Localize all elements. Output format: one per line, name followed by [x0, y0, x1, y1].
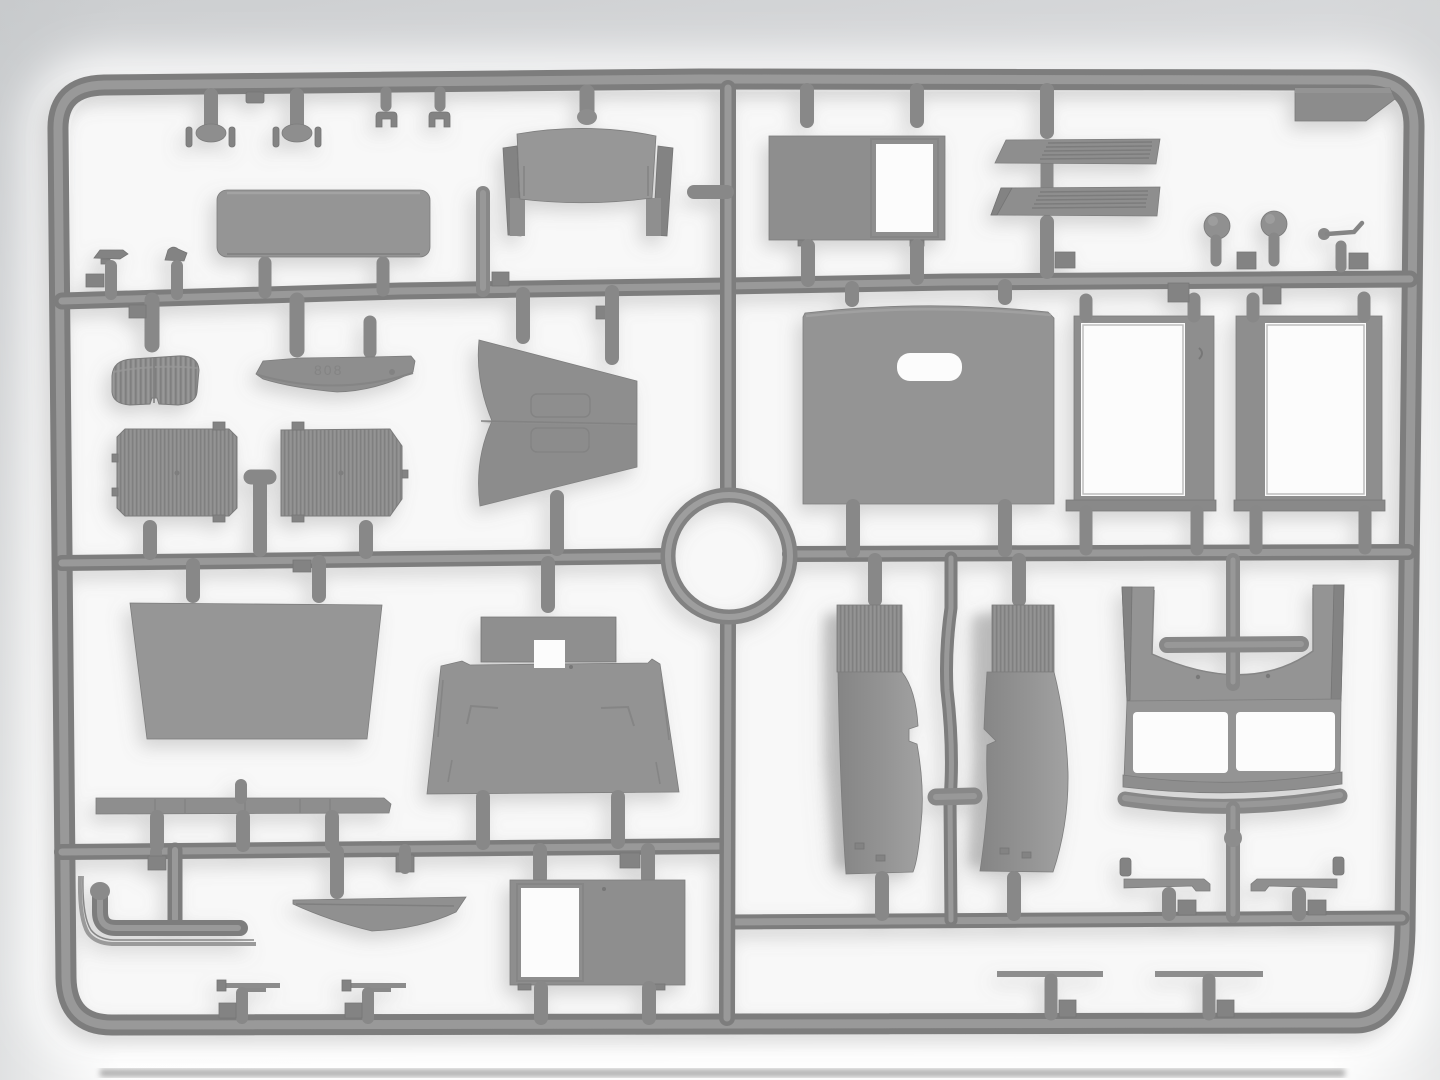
- svg-text:808: 808: [314, 362, 343, 378]
